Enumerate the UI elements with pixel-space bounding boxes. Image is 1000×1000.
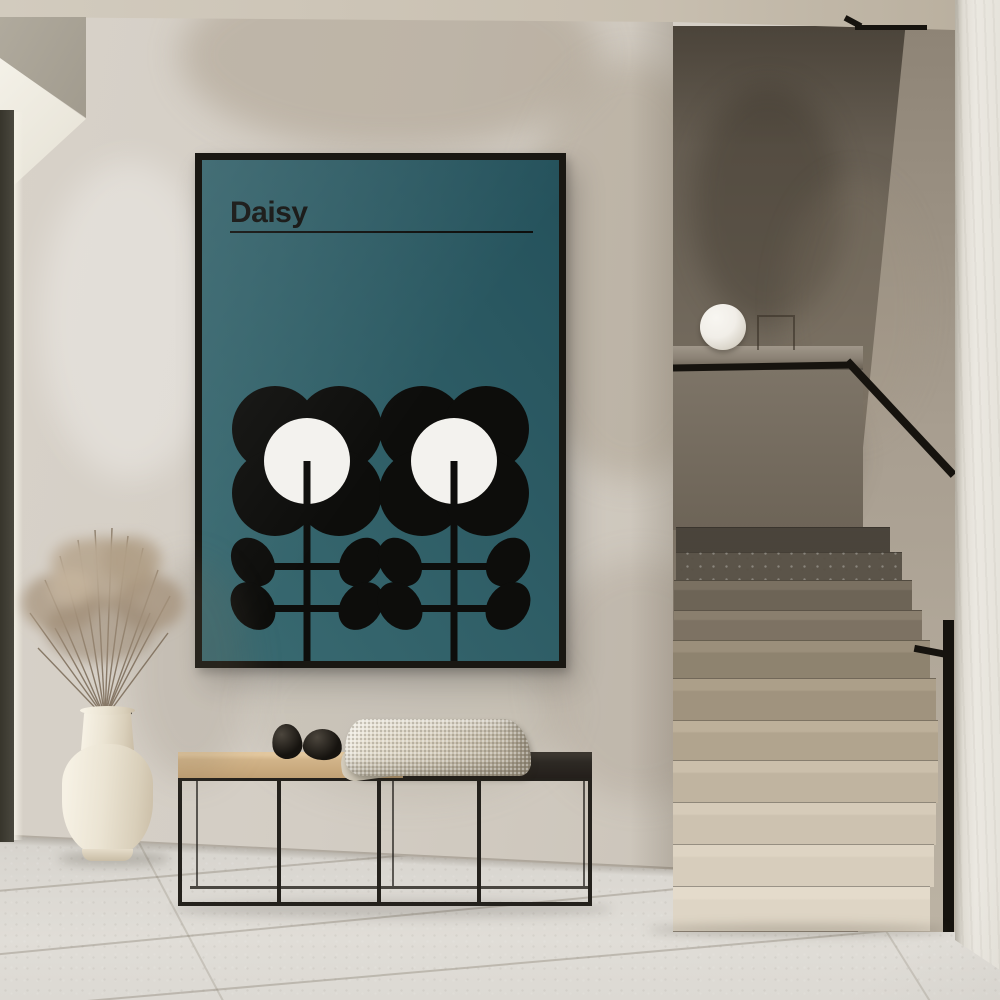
newel-post bbox=[943, 620, 954, 932]
wall-niche-corner-shade bbox=[630, 0, 673, 880]
bench-rear-leg bbox=[392, 780, 394, 886]
vase-body bbox=[62, 744, 153, 854]
poster-art: Daisy bbox=[202, 160, 559, 661]
poster-glass-sheen bbox=[202, 160, 559, 661]
staircase-niche bbox=[673, 26, 955, 932]
stairs-floor-shadow bbox=[648, 924, 948, 936]
stair-step bbox=[673, 844, 934, 887]
bench-leg bbox=[377, 778, 381, 906]
bench-rear-leg bbox=[196, 780, 198, 886]
bench-leg bbox=[277, 778, 281, 906]
stair-step bbox=[673, 678, 936, 721]
stair-step bbox=[673, 640, 930, 679]
lamp-stand bbox=[757, 315, 795, 350]
upper-handrail bbox=[855, 25, 927, 30]
hallway-scene: Daisy bbox=[0, 0, 1000, 1000]
right-front-wall bbox=[955, 0, 1000, 1000]
bench-rear-leg bbox=[583, 780, 585, 886]
blanket-knit-texture bbox=[345, 719, 531, 776]
bench-leg bbox=[178, 778, 182, 906]
bench-bottom-rail bbox=[178, 902, 592, 906]
stair-step bbox=[674, 580, 912, 611]
wall-stain bbox=[40, 160, 220, 480]
dried-grass bbox=[0, 518, 220, 728]
wall-stain bbox=[180, 0, 600, 150]
bench-leg bbox=[588, 778, 592, 906]
sphere-lamp bbox=[700, 304, 746, 350]
poster-frame: Daisy bbox=[195, 153, 566, 668]
landing-half-wall bbox=[673, 370, 863, 530]
bench-leg bbox=[477, 778, 481, 906]
bench-rear-rail bbox=[190, 886, 588, 889]
window-light-sliver bbox=[14, 112, 23, 840]
stair-step bbox=[673, 720, 938, 761]
blanket bbox=[345, 719, 531, 776]
stair-step bbox=[673, 802, 936, 845]
stair-step bbox=[676, 527, 890, 553]
stair-step bbox=[676, 552, 902, 581]
right-wall-edge-shade bbox=[955, 0, 963, 1000]
window-frame bbox=[0, 110, 14, 842]
vase-foot bbox=[82, 849, 133, 861]
vase-rim bbox=[80, 706, 135, 715]
bench-apron bbox=[178, 778, 592, 781]
stair-step bbox=[674, 610, 922, 641]
stair-step bbox=[673, 760, 938, 803]
